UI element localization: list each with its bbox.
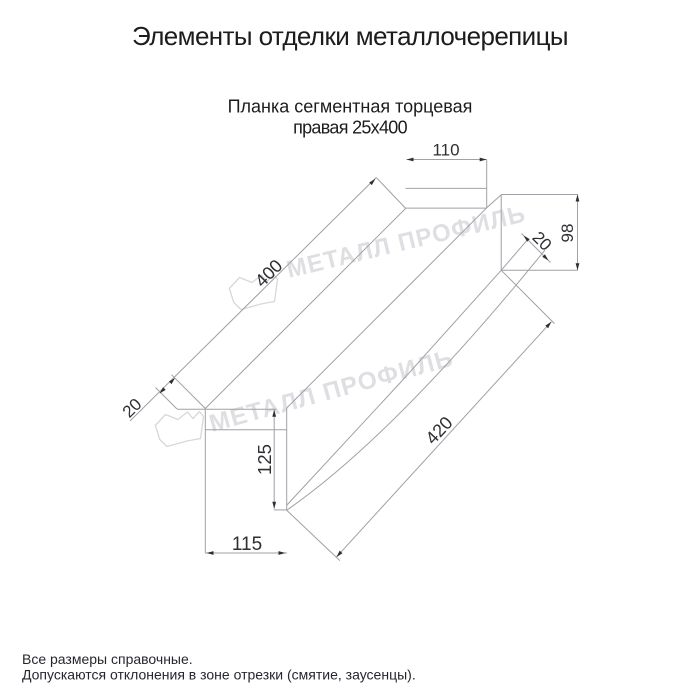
svg-text:98: 98 [558,224,577,243]
svg-text:Элементы отделки металлочерепи: Элементы отделки металлочерепицы [132,21,568,51]
svg-text:115: 115 [232,534,262,555]
svg-text:125: 125 [254,444,275,475]
svg-text:110: 110 [432,141,459,160]
svg-text:правая 25х400: правая 25х400 [293,118,408,138]
svg-text:Допускаются отклонения в зоне: Допускаются отклонения в зоне отрезки (с… [22,667,416,683]
svg-text:Все размеры справочные.: Все размеры справочные. [22,651,193,667]
svg-text:Планка сегментная торцевая: Планка сегментная торцевая [228,97,473,117]
